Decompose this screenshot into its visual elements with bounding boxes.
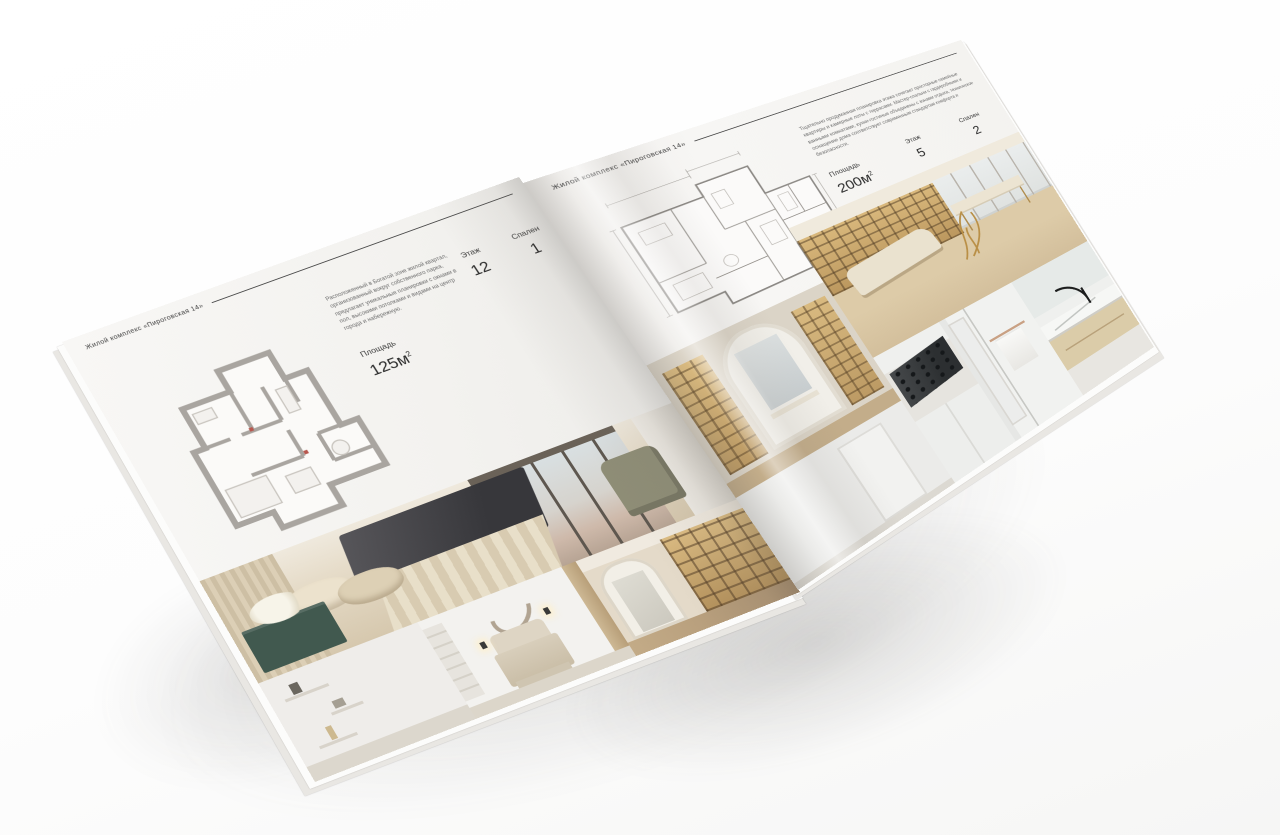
wall-sconce bbox=[543, 607, 552, 615]
wall-sconce bbox=[479, 641, 488, 649]
spec-floor: Этаж 5 bbox=[894, 130, 942, 167]
right-page-description: Тщательно продуманная планировка этажа с… bbox=[798, 67, 988, 160]
counter-edge bbox=[1048, 295, 1122, 342]
brochure-mockup-scene: Жилой комплекс «Пироговская 14» Располож… bbox=[0, 0, 1280, 835]
spec-bedrooms: Спален 2 bbox=[950, 108, 997, 144]
left-page-title: Жилой комплекс «Пироговская 14» bbox=[84, 303, 205, 351]
spec-area: Площадь 125м2 bbox=[358, 336, 417, 380]
cabinet-line bbox=[1065, 313, 1124, 351]
spec-area: Площадь 200м2 bbox=[827, 158, 878, 197]
door-edge bbox=[945, 403, 985, 463]
stove bbox=[889, 336, 963, 408]
